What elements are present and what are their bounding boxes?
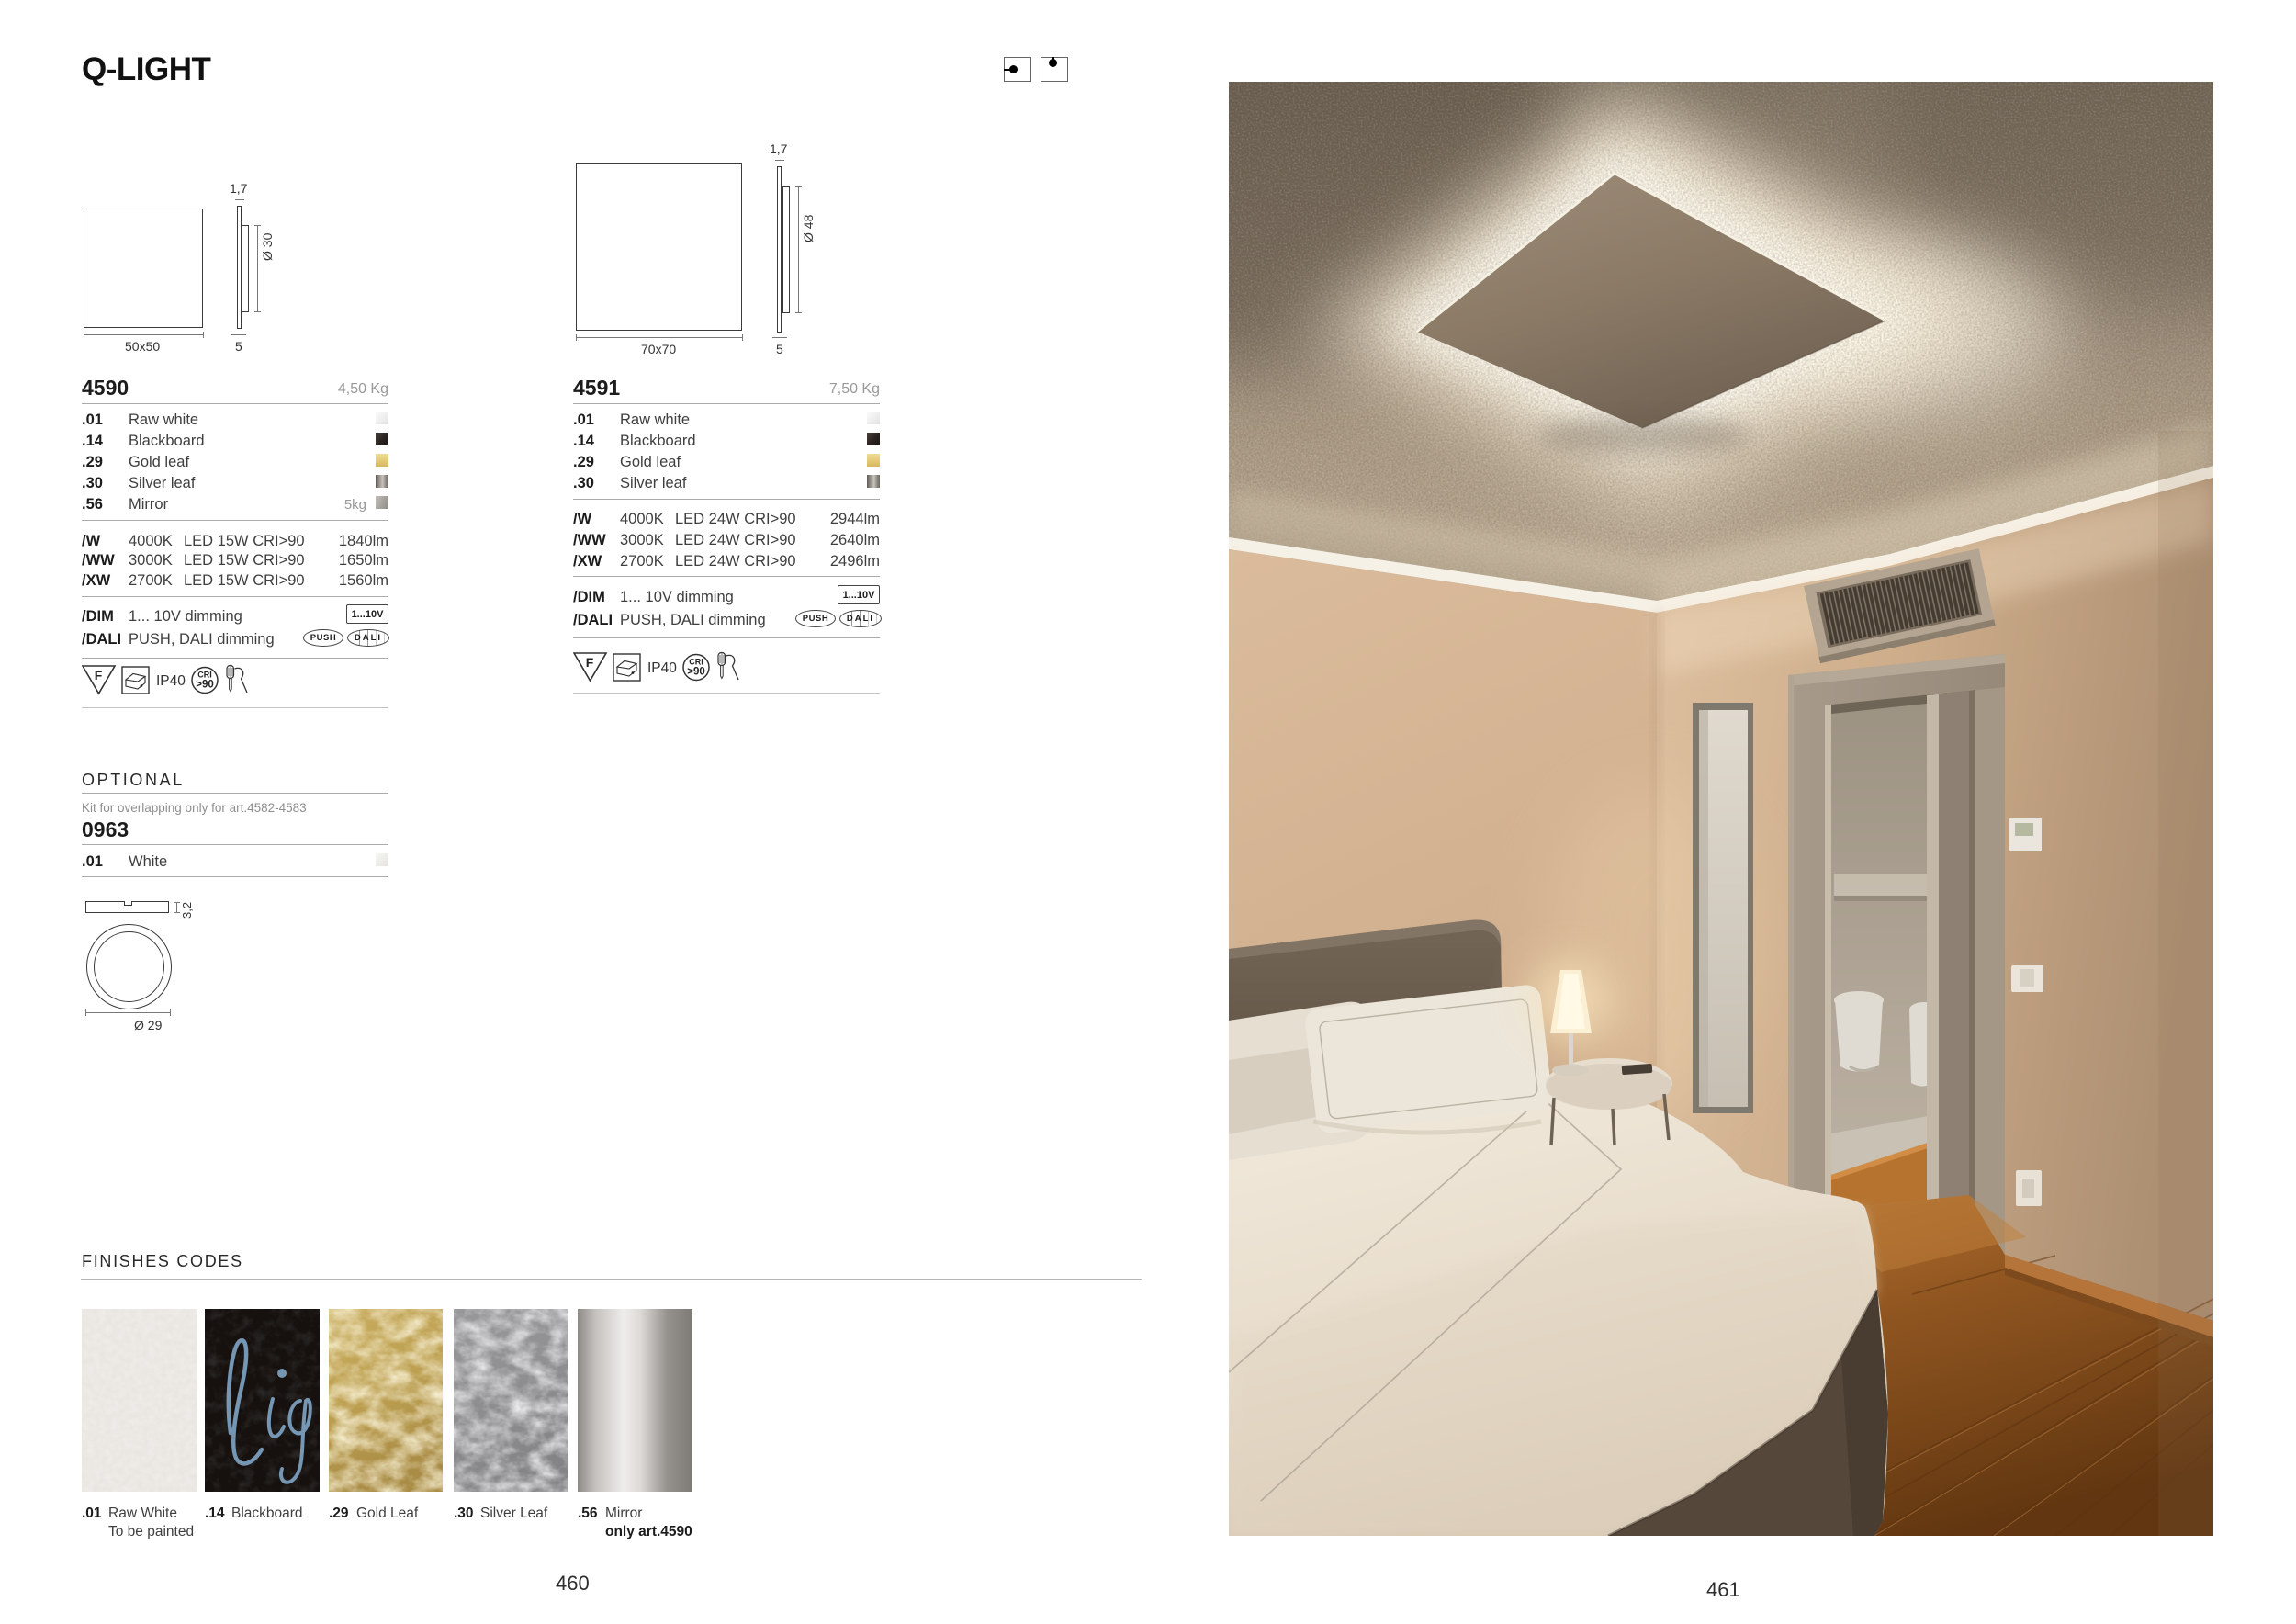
svg-text:F: F — [586, 655, 594, 670]
svg-text:IP40: IP40 — [647, 660, 677, 676]
svg-text:>90: >90 — [687, 667, 705, 678]
svg-text:IP40: IP40 — [156, 673, 186, 689]
svg-text:CRI: CRI — [689, 658, 703, 667]
svg-text:CRI: CRI — [197, 671, 212, 680]
svg-text:>90: >90 — [196, 680, 214, 691]
svg-text:F: F — [95, 668, 103, 682]
